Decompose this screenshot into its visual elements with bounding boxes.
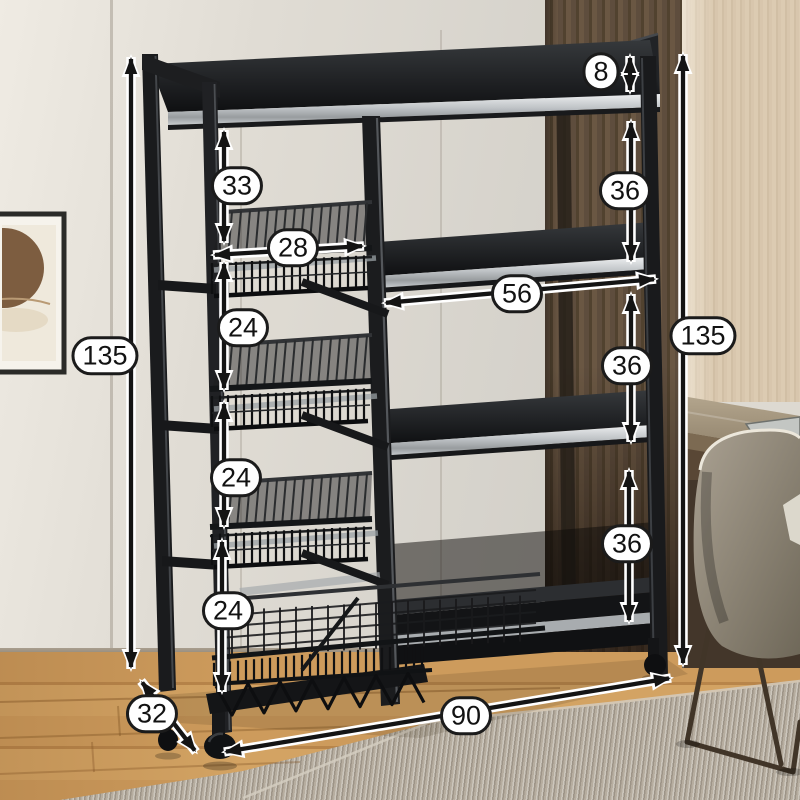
lower-shelf: [378, 390, 652, 461]
dim-label-top-gap: 33: [211, 166, 263, 205]
dim-label-basket-gap-1: 24: [217, 308, 269, 347]
dim-label-base-width: 90: [440, 696, 492, 735]
dim-label-shelf-gap-1: 36: [599, 171, 651, 210]
top-shelf: [150, 40, 660, 130]
dim-label-middle-shelf-width: 56: [491, 274, 543, 313]
dim-label-basket-gap-3: 24: [202, 591, 254, 630]
dim-label-back-rail-height: 8: [582, 52, 619, 91]
dim-label-shelf-gap-3: 36: [601, 524, 653, 563]
dim-label-total-height-left: 135: [71, 336, 138, 375]
dim-label-basket-width: 28: [267, 228, 319, 267]
dim-label-base-depth: 32: [126, 694, 178, 733]
dim-label-total-height-right: 135: [669, 316, 736, 355]
dim-label-basket-gap-2: 24: [210, 458, 262, 497]
dim-label-shelf-gap-2: 36: [601, 346, 653, 385]
product-photo: 135 33 28 24 24 24 8 36 36 36 56 135 32 …: [0, 0, 800, 800]
wall-art-frame: [0, 214, 64, 372]
